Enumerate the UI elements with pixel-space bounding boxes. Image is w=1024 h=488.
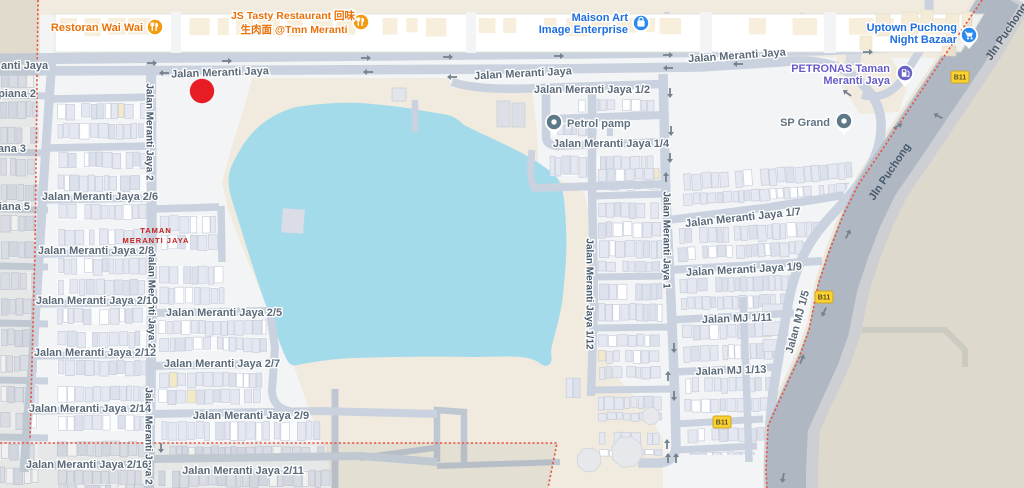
svg-text:Jalan Meranti Jaya 2/16: Jalan Meranti Jaya 2/16: [26, 459, 148, 471]
svg-text:Jalan Meranti Jaya 2/11: Jalan Meranti Jaya 2/11: [182, 465, 304, 477]
svg-text:B11: B11: [818, 294, 831, 301]
svg-text:Meranti Jaya: Meranti Jaya: [823, 75, 891, 87]
svg-text:Petrol pamp: Petrol pamp: [567, 118, 631, 130]
svg-text:Jalan Meranti Jaya 2/8: Jalan Meranti Jaya 2/8: [38, 245, 154, 257]
svg-text:Restoran Wai Wai: Restoran Wai Wai: [51, 22, 143, 34]
svg-text:Jalan MJ 1/13: Jalan MJ 1/13: [695, 364, 766, 378]
svg-text:Jalan Meranti Jaya 2: Jalan Meranti Jaya 2: [143, 83, 154, 181]
svg-text:SP Grand: SP Grand: [780, 117, 830, 129]
svg-text:Night Bazaar: Night Bazaar: [890, 34, 958, 46]
svg-text:JS Tasty Restaurant 回味: JS Tasty Restaurant 回味: [231, 9, 356, 22]
svg-text:Jalan Meranti Jaya 1: Jalan Meranti Jaya 1: [660, 191, 671, 289]
svg-text:Jalan Meranti Jaya 2/5: Jalan Meranti Jaya 2/5: [166, 307, 282, 319]
svg-text:Maison Art: Maison Art: [572, 12, 629, 24]
svg-text:anti Jaya: anti Jaya: [1, 60, 49, 72]
svg-text:MERANTI JAYA: MERANTI JAYA: [123, 236, 190, 245]
svg-text:Uptown Puchong: Uptown Puchong: [867, 22, 957, 34]
svg-text:B11: B11: [716, 419, 729, 426]
svg-text:Jalan MJ 1/11: Jalan MJ 1/11: [702, 312, 773, 326]
svg-text:Image Enterprise: Image Enterprise: [539, 24, 628, 36]
svg-text:B11: B11: [954, 74, 967, 81]
svg-text:Jalan Meranti Jaya 2/6: Jalan Meranti Jaya 2/6: [42, 191, 158, 203]
svg-text:Jalan Meranti Jaya 2/10: Jalan Meranti Jaya 2/10: [36, 295, 158, 307]
svg-text:Jalan Meranti Jaya 2/9: Jalan Meranti Jaya 2/9: [193, 410, 309, 422]
svg-text:生肉面 @Tmn Meranti: 生肉面 @Tmn Meranti: [240, 23, 347, 36]
svg-text:Jalan Meranti Jaya 2/12: Jalan Meranti Jaya 2/12: [34, 347, 156, 359]
svg-text:npiana 5: npiana 5: [0, 201, 30, 213]
svg-text:iana 3: iana 3: [0, 143, 26, 155]
svg-text:Jalan Meranti Jaya 1/12: Jalan Meranti Jaya 1/12: [583, 238, 594, 350]
svg-text:npiana 2: npiana 2: [0, 88, 36, 100]
svg-text:Jalan Meranti Jaya 1/4: Jalan Meranti Jaya 1/4: [553, 138, 670, 150]
svg-text:TAMAN: TAMAN: [140, 226, 172, 235]
svg-text:Jalan Meranti Jaya 2/7: Jalan Meranti Jaya 2/7: [164, 358, 280, 370]
svg-text:Jalan Meranti Jaya 1/2: Jalan Meranti Jaya 1/2: [534, 84, 650, 96]
svg-text:Jalan Meranti Jaya 2/14: Jalan Meranti Jaya 2/14: [29, 403, 152, 415]
svg-text:PETRONAS Taman: PETRONAS Taman: [791, 63, 890, 75]
